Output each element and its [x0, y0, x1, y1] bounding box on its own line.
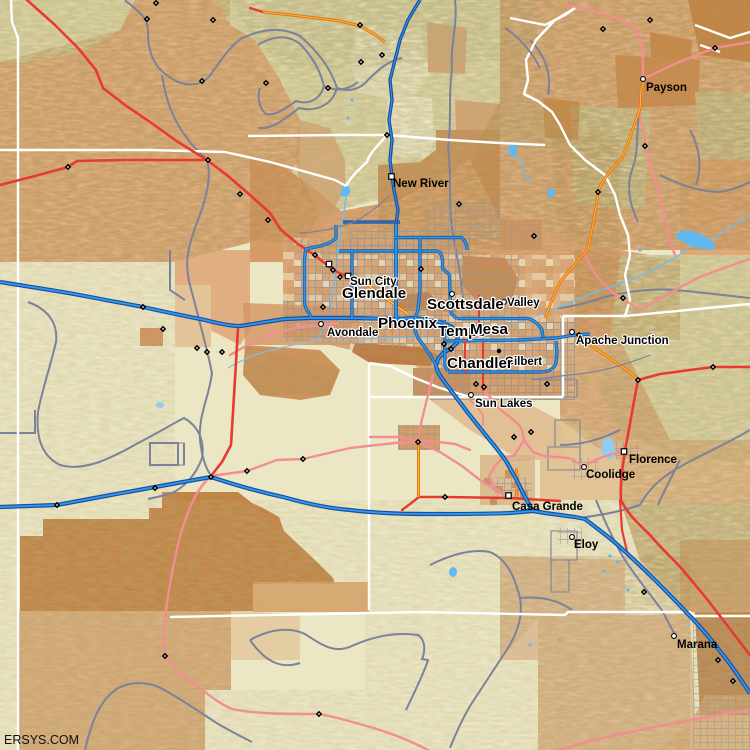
svg-text:Sun Lakes: Sun Lakes [475, 398, 533, 410]
svg-text:Valley: Valley [507, 297, 540, 309]
svg-text:Phoenix: Phoenix [378, 315, 438, 332]
svg-text:Marana: Marana [677, 639, 718, 651]
svg-text:Apache Junction: Apache Junction [576, 335, 669, 347]
svg-text:Casa Grande: Casa Grande [512, 501, 583, 513]
svg-text:Chandler: Chandler [447, 355, 513, 372]
svg-text:Glendale: Glendale [342, 285, 406, 302]
svg-text:Mesa: Mesa [470, 321, 509, 338]
svg-text:Scottsdale: Scottsdale [427, 296, 504, 313]
svg-text:New River: New River [393, 178, 449, 190]
svg-text:Avondale: Avondale [327, 327, 378, 339]
svg-text:Florence: Florence [629, 454, 677, 466]
svg-text:Payson: Payson [646, 82, 687, 94]
svg-text:ERSYS.COM: ERSYS.COM [4, 733, 79, 747]
svg-text:Coolidge: Coolidge [586, 469, 635, 481]
svg-text:Eloy: Eloy [574, 539, 599, 551]
